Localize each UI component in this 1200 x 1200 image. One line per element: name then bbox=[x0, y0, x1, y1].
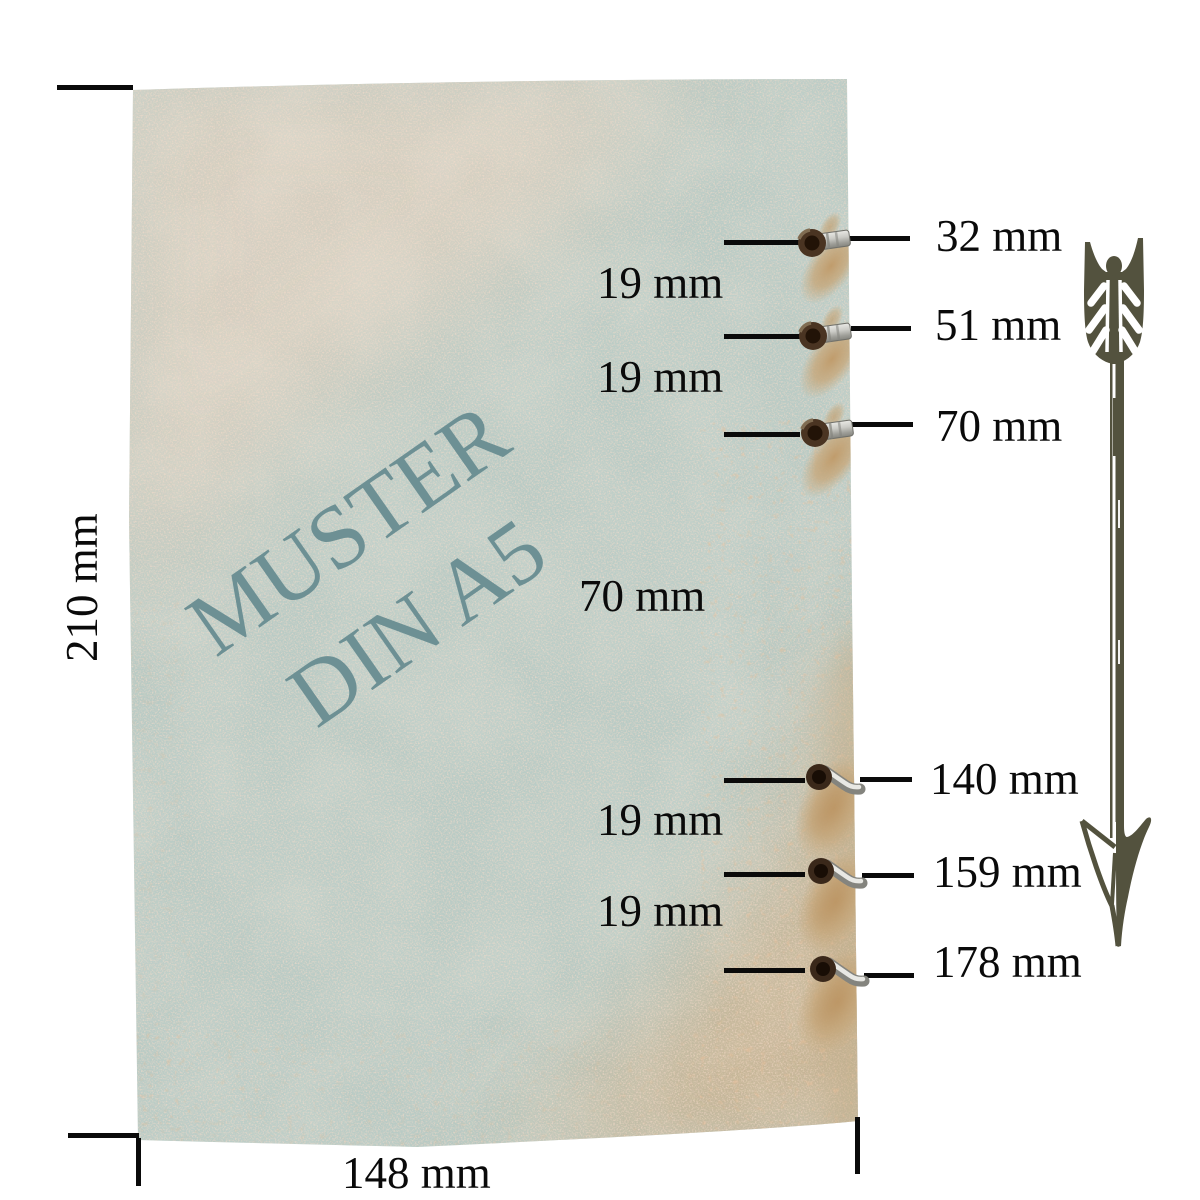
svg-text:70 mm: 70 mm bbox=[579, 571, 705, 621]
svg-text:140 mm: 140 mm bbox=[930, 754, 1079, 804]
svg-text:210 mm: 210 mm bbox=[57, 513, 107, 662]
svg-text:19 mm: 19 mm bbox=[597, 352, 723, 402]
svg-text:148 mm: 148 mm bbox=[342, 1148, 491, 1198]
svg-text:178 mm: 178 mm bbox=[933, 937, 1082, 987]
svg-text:51 mm: 51 mm bbox=[935, 300, 1061, 350]
svg-text:19 mm: 19 mm bbox=[597, 258, 723, 308]
svg-text:159 mm: 159 mm bbox=[933, 847, 1082, 897]
svg-text:32 mm: 32 mm bbox=[936, 211, 1062, 261]
svg-text:19 mm: 19 mm bbox=[597, 795, 723, 845]
svg-text:70 mm: 70 mm bbox=[936, 401, 1062, 451]
svg-text:19 mm: 19 mm bbox=[597, 886, 723, 936]
